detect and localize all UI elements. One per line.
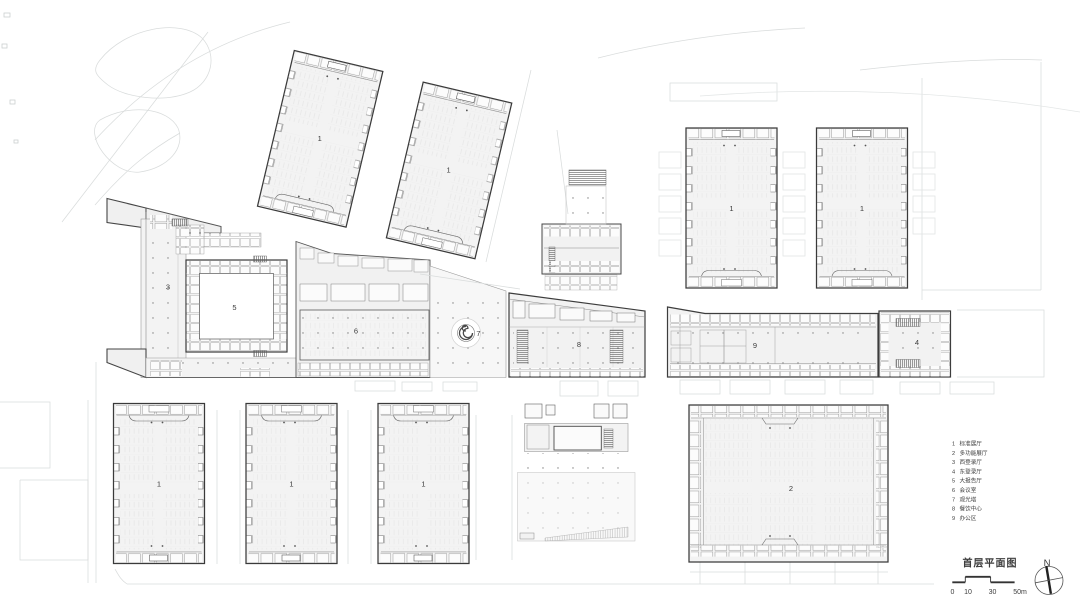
svg-text:首层平面图: 首层平面图 xyxy=(963,557,1018,570)
svg-text:6: 6 xyxy=(354,327,358,336)
svg-text:4: 4 xyxy=(915,338,919,347)
svg-text:大报告厅: 大报告厅 xyxy=(960,477,983,485)
svg-text:9: 9 xyxy=(952,516,955,522)
svg-text:1: 1 xyxy=(318,134,322,143)
svg-text:3: 3 xyxy=(166,283,170,292)
svg-text:1: 1 xyxy=(729,204,733,213)
svg-text:1: 1 xyxy=(447,166,451,175)
svg-text:0: 0 xyxy=(951,589,955,596)
svg-text:7: 7 xyxy=(952,497,955,503)
svg-text:30: 30 xyxy=(989,589,997,596)
svg-text:餐饮中心: 餐饮中心 xyxy=(960,505,983,513)
svg-text:1: 1 xyxy=(289,479,293,488)
svg-text:西登录厅: 西登录厅 xyxy=(960,458,983,466)
svg-text:东登录厅: 东登录厅 xyxy=(960,467,983,475)
svg-text:标准展厅: 标准展厅 xyxy=(960,440,983,448)
svg-text:1: 1 xyxy=(952,442,955,448)
svg-text:1: 1 xyxy=(157,479,161,488)
svg-text:观光塔: 观光塔 xyxy=(960,495,977,503)
svg-text:8: 8 xyxy=(577,340,581,349)
svg-text:6: 6 xyxy=(952,488,955,494)
svg-text:5: 5 xyxy=(952,479,955,485)
svg-text:3: 3 xyxy=(952,460,955,466)
svg-text:7: 7 xyxy=(476,329,480,338)
svg-text:4: 4 xyxy=(952,469,955,475)
svg-text:10: 10 xyxy=(964,589,972,596)
svg-text:2: 2 xyxy=(952,451,955,457)
svg-text:1: 1 xyxy=(860,204,864,213)
svg-text:多功能展厅: 多功能展厅 xyxy=(960,449,988,457)
svg-text:9: 9 xyxy=(753,341,757,350)
svg-text:会议室: 会议室 xyxy=(960,486,977,494)
svg-text:5: 5 xyxy=(232,303,236,312)
svg-text:50m: 50m xyxy=(1013,589,1027,596)
svg-text:2: 2 xyxy=(789,484,793,493)
svg-text:办公区: 办公区 xyxy=(960,514,977,522)
svg-text:N: N xyxy=(1044,558,1051,569)
svg-text:1: 1 xyxy=(421,479,425,488)
svg-text:8: 8 xyxy=(952,507,955,513)
